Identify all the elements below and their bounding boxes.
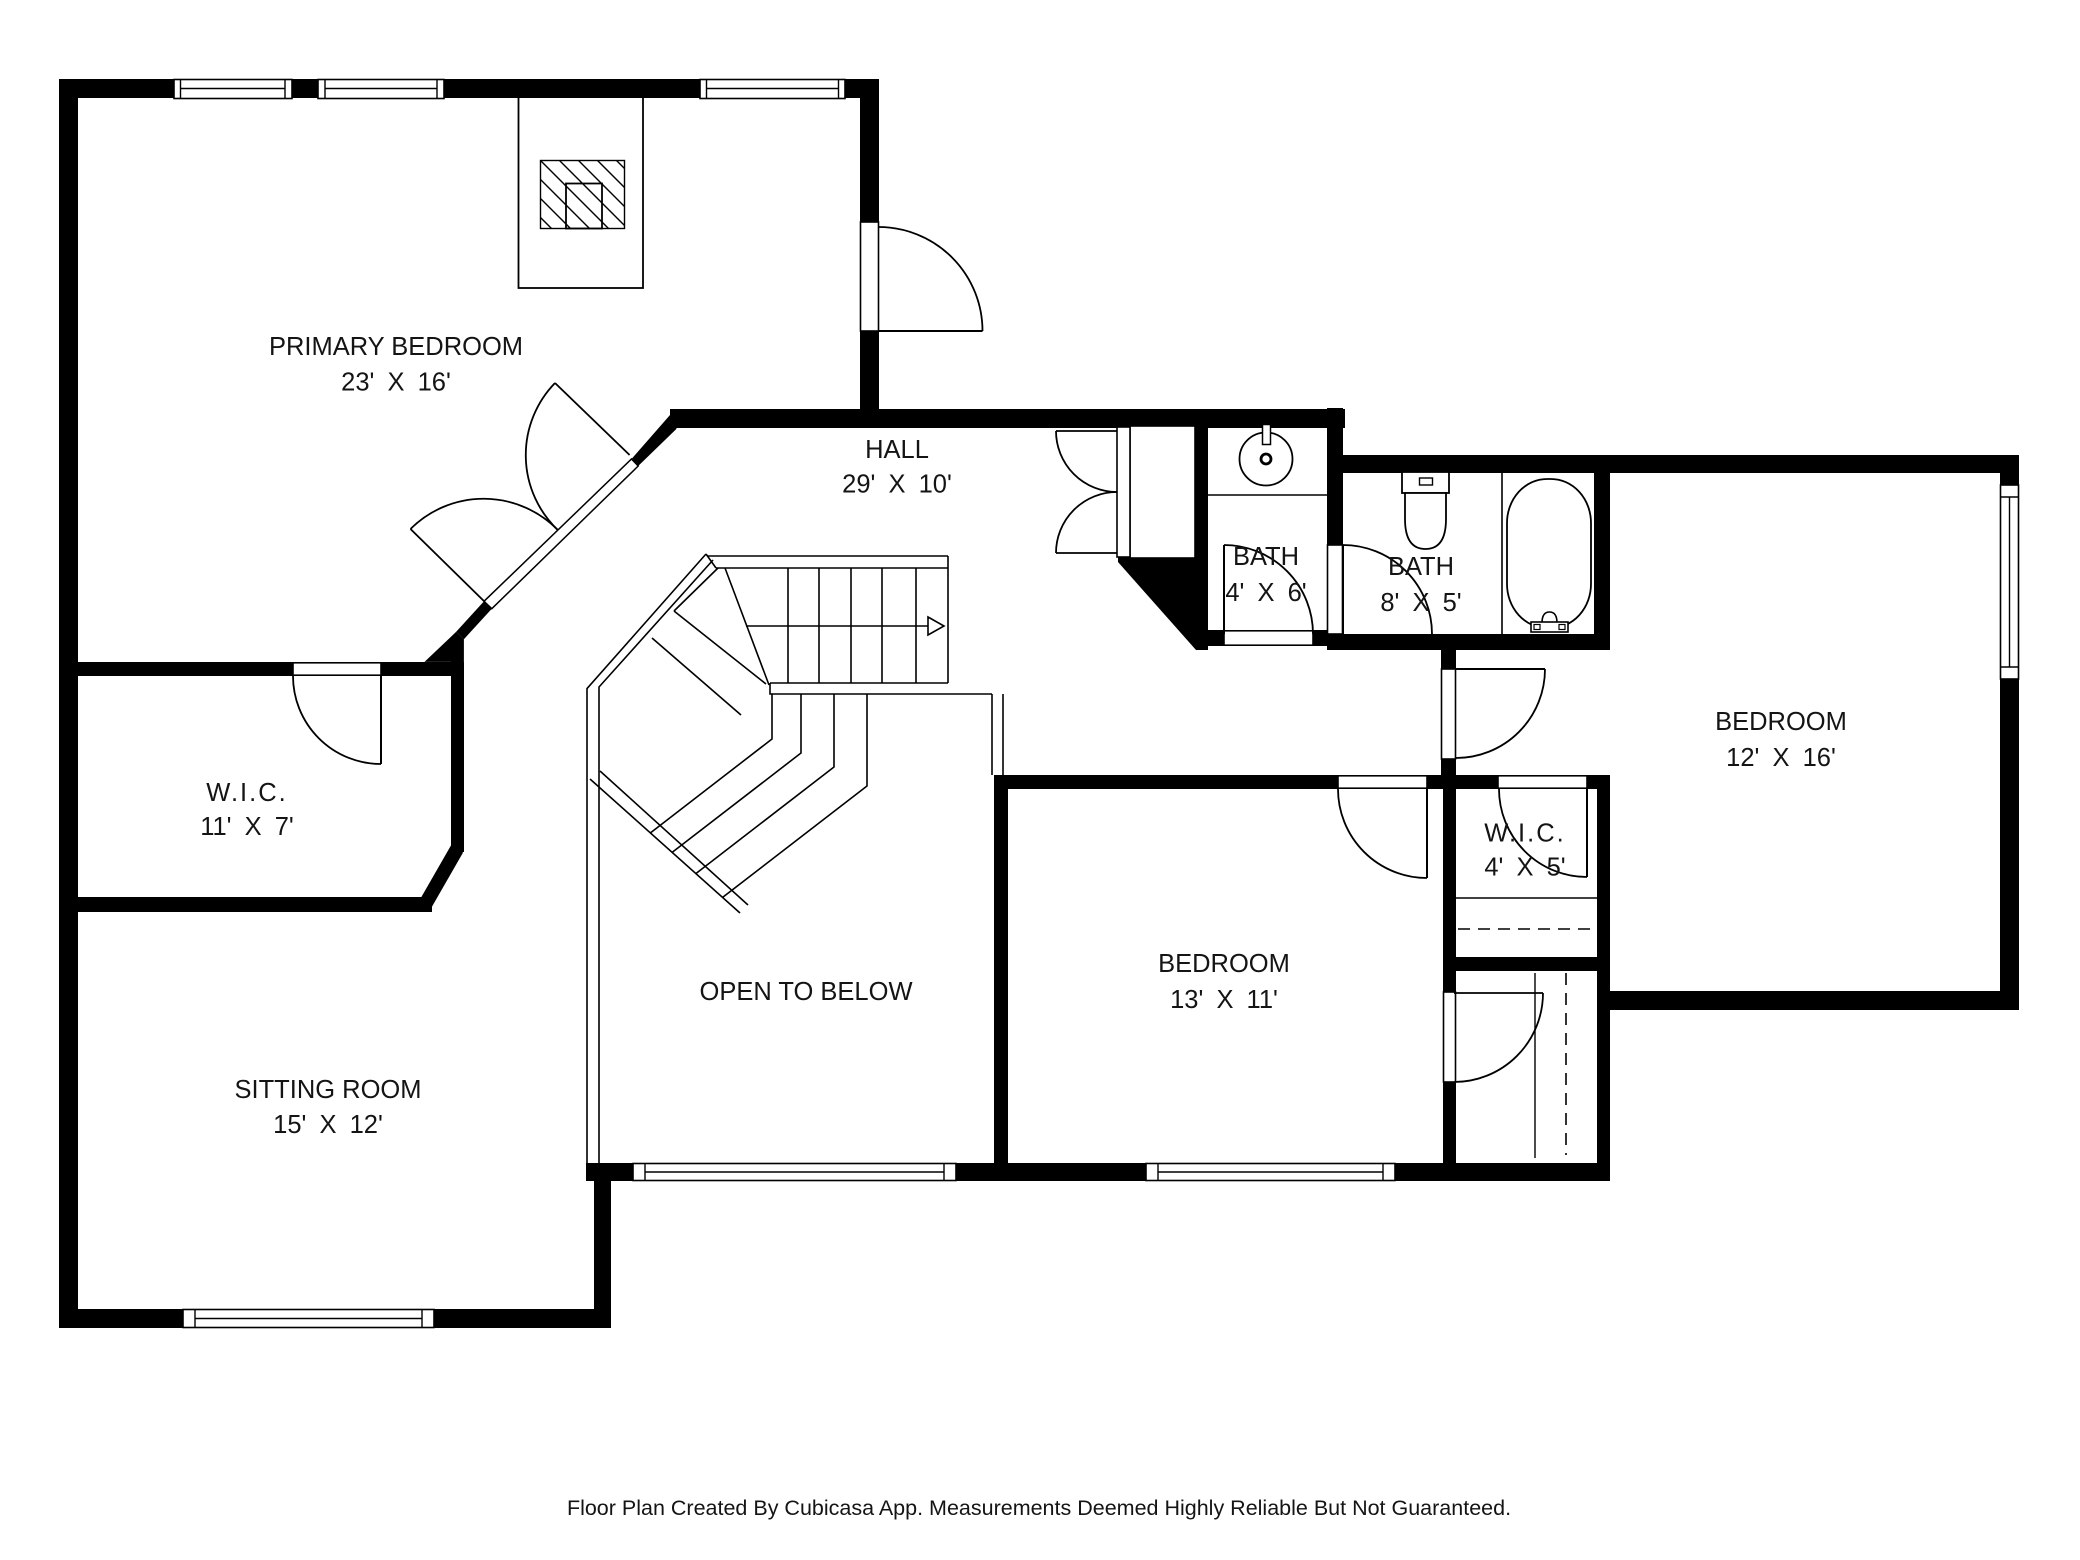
svg-text:BEDROOM: BEDROOM <box>1158 950 1290 978</box>
svg-text:15' X 12': 15' X 12' <box>273 1111 383 1139</box>
svg-text:11' X 7': 11' X 7' <box>200 813 294 841</box>
svg-text:4' X 6': 4' X 6' <box>1225 579 1306 607</box>
svg-text:W.I.C.: W.I.C. <box>206 779 287 807</box>
svg-text:OPEN TO BELOW: OPEN TO BELOW <box>699 978 912 1006</box>
svg-text:BATH: BATH <box>1233 543 1299 571</box>
svg-text:SITTING ROOM: SITTING ROOM <box>235 1076 422 1104</box>
svg-text:29' X 10': 29' X 10' <box>842 471 952 499</box>
svg-text:8' X 5': 8' X 5' <box>1380 589 1461 617</box>
svg-text:BEDROOM: BEDROOM <box>1715 708 1847 736</box>
svg-text:23' X 16': 23' X 16' <box>341 369 451 397</box>
svg-text:Floor Plan Created By Cubicasa: Floor Plan Created By Cubicasa App. Meas… <box>567 1496 1511 1520</box>
svg-text:12' X 16': 12' X 16' <box>1726 744 1836 772</box>
svg-text:PRIMARY BEDROOM: PRIMARY BEDROOM <box>269 333 523 361</box>
svg-text:W.I.C.: W.I.C. <box>1484 820 1565 848</box>
svg-text:BATH: BATH <box>1388 553 1454 581</box>
svg-text:HALL: HALL <box>865 436 929 464</box>
svg-text:4' X 5': 4' X 5' <box>1484 854 1565 882</box>
svg-text:13' X 11': 13' X 11' <box>1170 986 1278 1014</box>
